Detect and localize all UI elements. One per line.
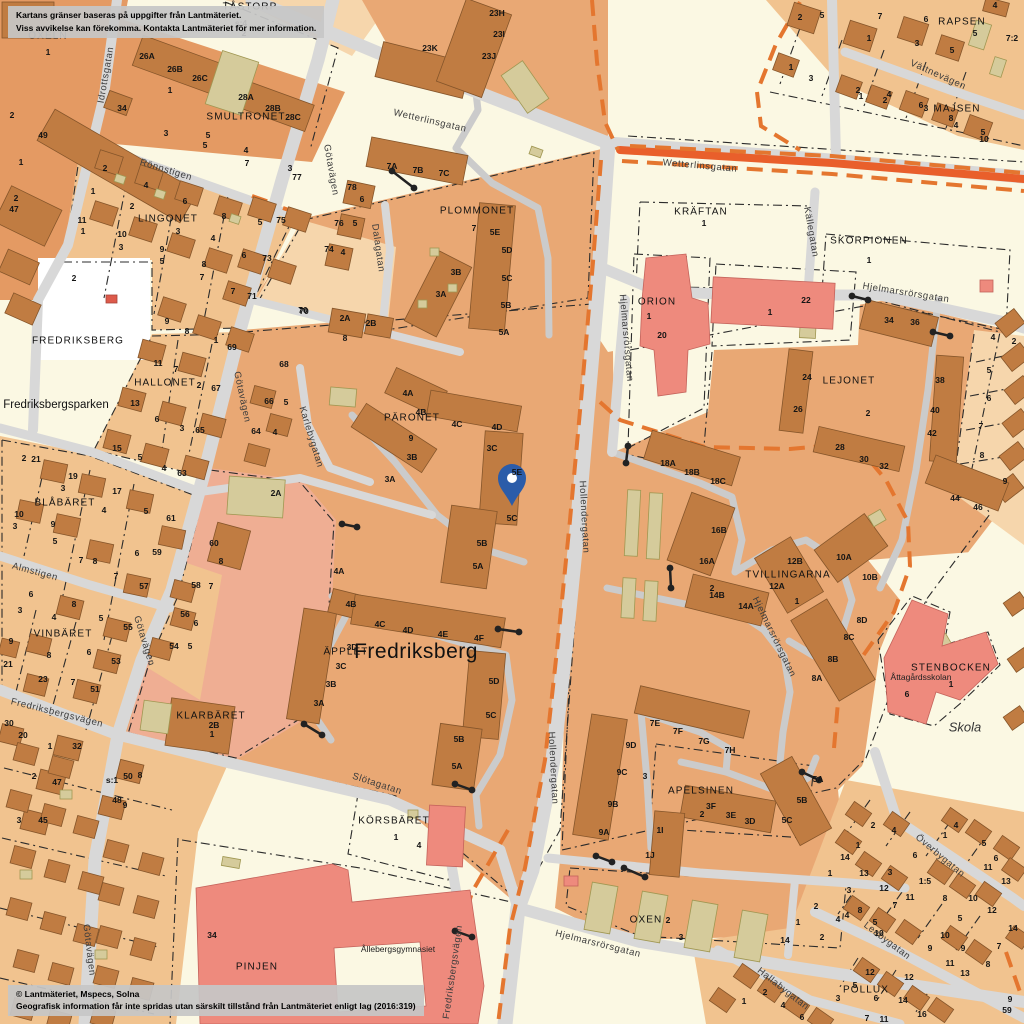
building (364, 314, 393, 338)
building (621, 578, 636, 619)
building (649, 811, 684, 877)
building (643, 581, 658, 622)
barrier-dot (623, 460, 630, 467)
building (165, 698, 235, 754)
barrier-dot (799, 769, 806, 776)
building (564, 876, 578, 886)
attribution-line1: © Lantmäteriet, Mspecs, Solna (16, 988, 416, 1001)
barrier-dot (319, 732, 326, 739)
building (448, 284, 457, 292)
building (462, 651, 505, 740)
road (832, 0, 836, 158)
barrier-dot (667, 565, 674, 572)
building (329, 387, 356, 407)
building (980, 280, 993, 292)
barrier-dot (469, 787, 476, 794)
barrier-dot (947, 333, 954, 340)
barrier-dot (389, 168, 396, 175)
barrier-dot (621, 865, 628, 872)
map-disclaimer-box: Kartans gränser baseras på uppgifter frå… (8, 6, 324, 38)
building (325, 244, 353, 271)
building (20, 870, 32, 879)
building (95, 950, 107, 959)
barrier-dot (339, 521, 346, 528)
building (140, 700, 172, 734)
map-canvas: TÅSTORPOXELNSMULTRONETLINGONETFREDRIKSBE… (0, 0, 1024, 1024)
barrier-dot (865, 297, 872, 304)
barrier-dot (609, 859, 616, 866)
barrier-dot (452, 928, 459, 935)
building (227, 476, 286, 518)
map-attribution-box: © Lantmäteriet, Mspecs, Solna Geografisk… (8, 985, 424, 1017)
map-graphics (0, 0, 1024, 1024)
barrier-dot (930, 329, 937, 336)
building (430, 248, 439, 256)
building (408, 810, 418, 818)
attribution-line2: Geografisk information får inte spridas … (16, 1000, 416, 1013)
barrier-dot (411, 185, 418, 192)
building (432, 723, 482, 790)
barrier-dot (516, 629, 523, 636)
barrier-dot (469, 934, 476, 941)
building (426, 805, 465, 867)
barrier-dot (301, 721, 308, 728)
building (711, 277, 835, 329)
barrier-dot (354, 524, 361, 531)
barrier-dot (642, 874, 649, 881)
barrier-dot (849, 293, 856, 300)
building (106, 295, 117, 303)
barrier-dot (593, 853, 600, 860)
barrier-dot (495, 626, 502, 633)
building (418, 300, 427, 308)
pin-center-dot (507, 473, 517, 483)
barrier-dot (668, 585, 675, 592)
barrier-dot (452, 781, 459, 788)
disclaimer-line2: Viss avvikelse kan förekomma. Kontakta L… (16, 22, 316, 35)
barrier-dot (816, 777, 823, 784)
building (337, 214, 365, 240)
building (60, 790, 72, 799)
barrier-dot (625, 443, 632, 450)
disclaimer-line1: Kartans gränser baseras på uppgifter frå… (16, 9, 316, 22)
